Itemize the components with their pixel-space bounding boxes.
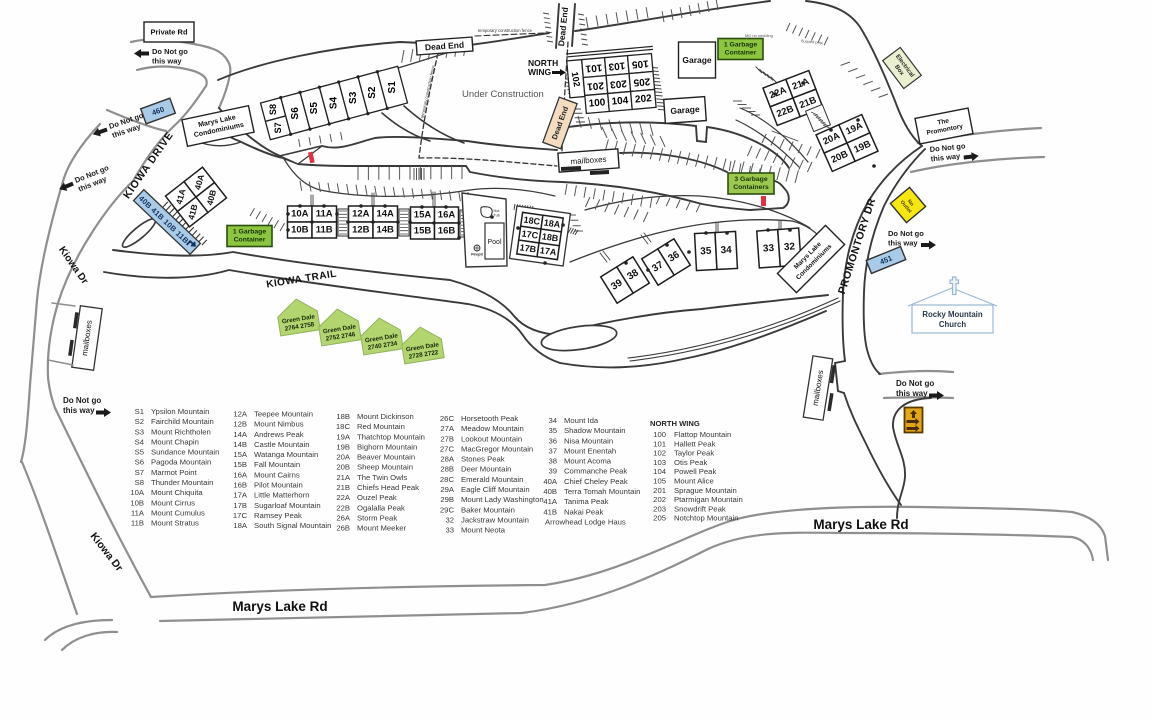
svg-text:Stones Peak: Stones Peak	[461, 455, 505, 464]
svg-text:12B: 12B	[233, 420, 247, 429]
svg-text:202: 202	[653, 495, 666, 504]
svg-text:203: 203	[609, 77, 627, 89]
svg-text:15A: 15A	[414, 210, 432, 221]
svg-text:Fairchild Mountain: Fairchild Mountain	[151, 417, 214, 426]
svg-text:Mount Ida: Mount Ida	[564, 416, 599, 425]
svg-text:20B: 20B	[336, 463, 350, 472]
svg-text:10B: 10B	[291, 225, 309, 236]
svg-text:Taylor Peak: Taylor Peak	[674, 449, 714, 458]
svg-text:36: 36	[548, 436, 557, 445]
svg-text:this way: this way	[152, 57, 182, 66]
svg-text:15B: 15B	[233, 460, 247, 469]
svg-text:28A: 28A	[440, 455, 455, 464]
svg-text:Storm Peak: Storm Peak	[357, 514, 397, 523]
svg-text:Private Rd: Private Rd	[150, 28, 188, 37]
svg-text:Beaver Mountain: Beaver Mountain	[357, 453, 415, 462]
svg-text:Do Not go: Do Not go	[63, 396, 101, 405]
svg-text:29C: 29C	[440, 505, 455, 514]
svg-text:Flattop Mountain: Flattop Mountain	[674, 430, 731, 439]
svg-text:Teepee Mountain: Teepee Mountain	[254, 410, 313, 419]
svg-text:Mount Neota: Mount Neota	[461, 526, 506, 535]
svg-text:S8: S8	[268, 104, 278, 115]
svg-text:Mount Acoma: Mount Acoma	[564, 457, 612, 466]
svg-text:Little Matterhorn: Little Matterhorn	[254, 491, 310, 500]
svg-text:27C: 27C	[440, 444, 455, 453]
svg-text:Hallett Peak: Hallett Peak	[674, 439, 716, 448]
svg-text:Containers: Containers	[733, 184, 769, 191]
svg-text:WING: WING	[528, 67, 552, 77]
svg-text:Chief Cheley Peak: Chief Cheley Peak	[564, 477, 628, 486]
svg-text:Shadow Mountain: Shadow Mountain	[564, 426, 626, 435]
svg-text:10A: 10A	[291, 209, 309, 220]
svg-text:28B: 28B	[440, 465, 454, 474]
svg-text:Pilot Mountain: Pilot Mountain	[254, 481, 303, 490]
svg-text:S5: S5	[309, 102, 320, 115]
svg-text:11B: 11B	[131, 519, 144, 528]
svg-text:17C: 17C	[233, 511, 248, 520]
svg-text:Garage: Garage	[682, 55, 712, 65]
svg-text:The Twin Owls: The Twin Owls	[357, 473, 407, 482]
svg-text:205: 205	[653, 514, 666, 523]
svg-text:100: 100	[653, 430, 666, 439]
svg-text:Otis Peak: Otis Peak	[674, 458, 707, 467]
svg-text:33: 33	[763, 243, 775, 255]
svg-text:this way: this way	[896, 389, 928, 398]
svg-text:14A: 14A	[233, 430, 248, 439]
svg-text:12A: 12A	[233, 410, 248, 419]
svg-text:Emerald Mountain: Emerald Mountain	[461, 475, 523, 484]
svg-text:Tanima Peak: Tanima Peak	[564, 497, 609, 506]
svg-text:S7: S7	[273, 122, 283, 133]
svg-text:34: 34	[548, 416, 557, 425]
svg-text:S6: S6	[135, 458, 144, 467]
svg-text:101: 101	[653, 439, 666, 448]
svg-text:Andrews Peak: Andrews Peak	[254, 430, 304, 439]
svg-text:201: 201	[586, 79, 604, 91]
svg-text:203: 203	[653, 504, 666, 513]
svg-text:Mount Cairns: Mount Cairns	[254, 470, 300, 479]
svg-text:3 Garbage: 3 Garbage	[734, 176, 767, 183]
svg-text:Horsetooth Peak: Horsetooth Peak	[461, 414, 518, 423]
svg-text:MD no sledding: MD no sledding	[745, 33, 773, 38]
svg-text:Pagoda Mountain: Pagoda Mountain	[151, 458, 211, 467]
svg-text:35: 35	[548, 426, 557, 435]
svg-text:15A: 15A	[233, 450, 248, 459]
svg-text:Powell Peak: Powell Peak	[674, 467, 716, 476]
svg-text:22A: 22A	[336, 493, 351, 502]
svg-text:Mount Nimbus: Mount Nimbus	[254, 420, 304, 429]
svg-text:29B: 29B	[440, 495, 454, 504]
svg-text:Marmot Point: Marmot Point	[151, 468, 198, 477]
svg-text:20A: 20A	[336, 453, 351, 462]
svg-text:27B: 27B	[440, 434, 454, 443]
svg-text:Chiefs Head Peak: Chiefs Head Peak	[357, 483, 419, 492]
svg-text:Snowdrift Peak: Snowdrift Peak	[674, 504, 726, 513]
svg-text:37: 37	[548, 446, 557, 455]
svg-text:103: 103	[653, 458, 666, 467]
svg-text:16B: 16B	[438, 226, 456, 237]
svg-text:103: 103	[608, 59, 626, 71]
svg-text:Thatchtop Mountain: Thatchtop Mountain	[357, 432, 425, 441]
svg-text:26B: 26B	[336, 524, 350, 533]
svg-text:Mount Dickinson: Mount Dickinson	[357, 412, 414, 421]
svg-text:10A: 10A	[130, 488, 145, 497]
svg-text:18A: 18A	[233, 521, 248, 530]
svg-text:105: 105	[631, 57, 649, 69]
svg-text:Nisa Mountain: Nisa Mountain	[564, 436, 613, 445]
svg-text:Firepit: Firepit	[471, 253, 483, 257]
svg-text:17A: 17A	[233, 491, 248, 500]
svg-text:temporary construction fence: temporary construction fence	[478, 28, 533, 33]
svg-text:41B: 41B	[543, 507, 557, 516]
svg-text:14A: 14A	[376, 209, 394, 220]
svg-text:this way: this way	[888, 239, 918, 248]
svg-text:32: 32	[445, 516, 454, 525]
svg-text:11A: 11A	[316, 209, 333, 220]
svg-text:Watanga Mountain: Watanga Mountain	[254, 450, 318, 459]
svg-text:S3: S3	[348, 91, 359, 104]
svg-text:Jackstraw Mountain: Jackstraw Mountain	[461, 516, 529, 525]
svg-text:19A: 19A	[336, 432, 351, 441]
svg-text:Under Construction: Under Construction	[462, 89, 544, 100]
svg-text:Mount Chapin: Mount Chapin	[151, 437, 199, 446]
svg-text:Lookout Mountain: Lookout Mountain	[461, 434, 522, 443]
svg-text:Mount Cirrus: Mount Cirrus	[151, 498, 195, 507]
svg-text:S1: S1	[135, 407, 144, 416]
svg-text:1 Garbage: 1 Garbage	[724, 42, 757, 49]
svg-text:Mount Chiquita: Mount Chiquita	[151, 488, 203, 497]
svg-text:Mount Stratus: Mount Stratus	[151, 519, 199, 528]
svg-text:S7: S7	[135, 468, 144, 477]
svg-text:South Signal Mountain: South Signal Mountain	[254, 521, 331, 530]
svg-text:Mount Meeker: Mount Meeker	[357, 524, 407, 533]
svg-text:41A: 41A	[543, 497, 558, 506]
svg-text:Ypsilon Mountain: Ypsilon Mountain	[151, 407, 209, 416]
svg-text:Mount Lady Washington: Mount Lady Washington	[461, 495, 544, 504]
svg-text:21B: 21B	[336, 483, 350, 492]
svg-text:26A: 26A	[336, 514, 351, 523]
svg-text:38: 38	[548, 457, 557, 466]
svg-text:39: 39	[548, 467, 557, 476]
svg-text:33: 33	[445, 526, 454, 535]
svg-text:Ogalalla Peak: Ogalalla Peak	[357, 503, 405, 512]
svg-text:Castle Mountain: Castle Mountain	[254, 440, 310, 449]
svg-text:102: 102	[653, 449, 666, 458]
svg-text:29A: 29A	[440, 485, 455, 494]
svg-text:Do Not go: Do Not go	[888, 229, 924, 238]
svg-text:Fall Mountain: Fall Mountain	[254, 460, 300, 469]
svg-text:40A: 40A	[543, 477, 558, 486]
svg-text:Hot: Hot	[494, 209, 501, 213]
svg-text:12A: 12A	[352, 209, 370, 220]
svg-text:16A: 16A	[438, 210, 456, 221]
svg-text:S2: S2	[367, 86, 378, 99]
svg-text:104: 104	[653, 467, 667, 476]
svg-text:S1: S1	[387, 81, 398, 94]
svg-text:Mount Cumulus: Mount Cumulus	[151, 509, 205, 518]
svg-text:Notchtop Mountain: Notchtop Mountain	[674, 514, 739, 523]
svg-text:32: 32	[784, 241, 796, 253]
svg-text:14B: 14B	[376, 225, 394, 236]
svg-text:21A: 21A	[336, 473, 351, 482]
svg-text:S8: S8	[135, 478, 144, 487]
svg-text:Mount Alice: Mount Alice	[674, 477, 714, 486]
svg-text:Deer Mountain: Deer Mountain	[461, 465, 511, 474]
svg-text:11B: 11B	[316, 225, 333, 236]
svg-text:18B: 18B	[336, 412, 350, 421]
svg-text:Ramsey Peak: Ramsey Peak	[254, 511, 302, 520]
svg-text:18C: 18C	[336, 422, 351, 431]
svg-text:Eagle Cliff Mountain: Eagle Cliff Mountain	[461, 485, 530, 494]
svg-text:11A: 11A	[131, 509, 145, 518]
svg-text:1 Garbage: 1 Garbage	[233, 229, 266, 236]
svg-text:40B: 40B	[543, 487, 557, 496]
svg-text:Thunder Mountain: Thunder Mountain	[151, 478, 213, 487]
svg-text:202: 202	[635, 93, 653, 105]
svg-text:19B: 19B	[336, 442, 350, 451]
svg-text:35: 35	[700, 246, 712, 258]
svg-text:S5: S5	[135, 448, 144, 457]
svg-text:Arrowhead Lodge Haus: Arrowhead Lodge Haus	[545, 518, 626, 527]
svg-text:Container: Container	[234, 236, 266, 243]
svg-text:Sundance Mountain: Sundance Mountain	[151, 448, 219, 457]
svg-text:NORTH WING: NORTH WING	[650, 419, 700, 428]
svg-text:10B: 10B	[130, 498, 144, 507]
svg-text:Tub: Tub	[494, 214, 500, 218]
svg-text:34: 34	[720, 245, 732, 257]
svg-text:Nakai Peak: Nakai Peak	[564, 507, 603, 516]
svg-text:Bighorn Mountain: Bighorn Mountain	[357, 442, 417, 451]
svg-text:S4: S4	[329, 96, 340, 109]
svg-text:101: 101	[585, 61, 603, 73]
svg-text:MacGregor Mountain: MacGregor Mountain	[461, 444, 533, 453]
svg-text:Do Not go: Do Not go	[152, 47, 188, 56]
svg-text:201: 201	[653, 486, 666, 495]
svg-text:27A: 27A	[440, 424, 455, 433]
svg-text:Meadow Mountain: Meadow Mountain	[461, 424, 524, 433]
svg-text:Mount Richtholen: Mount Richtholen	[151, 427, 211, 436]
svg-text:Do Not go: Do Not go	[896, 379, 934, 388]
svg-text:16B: 16B	[233, 481, 247, 490]
svg-text:this way: this way	[63, 406, 95, 415]
svg-text:105: 105	[653, 477, 666, 486]
svg-text:14B: 14B	[233, 440, 247, 449]
svg-text:Terra Tomah Mountain: Terra Tomah Mountain	[564, 487, 640, 496]
svg-text:26C: 26C	[440, 414, 455, 423]
svg-text:Garage: Garage	[670, 104, 700, 116]
svg-text:Sugarloaf Mountain: Sugarloaf Mountain	[254, 501, 321, 510]
svg-text:28C: 28C	[440, 475, 455, 484]
svg-text:17B: 17B	[233, 501, 247, 510]
svg-text:Container: Container	[725, 49, 757, 56]
svg-text:Marys Lake Rd: Marys Lake Rd	[813, 517, 908, 532]
svg-text:104: 104	[611, 95, 629, 107]
svg-text:Sprague Mountain: Sprague Mountain	[674, 486, 737, 495]
svg-text:Commanche Peak: Commanche Peak	[564, 467, 627, 476]
svg-text:S3: S3	[135, 427, 144, 436]
svg-text:S6: S6	[290, 107, 301, 120]
svg-text:Ptarmigan Mountain: Ptarmigan Mountain	[674, 495, 743, 504]
svg-text:12B: 12B	[352, 225, 370, 236]
svg-text:S4: S4	[135, 437, 145, 446]
svg-text:Red Mountain: Red Mountain	[357, 422, 405, 431]
svg-text:15B: 15B	[414, 226, 432, 237]
svg-text:100: 100	[588, 97, 606, 109]
svg-text:Marys Lake Rd: Marys Lake Rd	[232, 599, 327, 614]
svg-text:22B: 22B	[336, 503, 350, 512]
svg-text:Rocky Mountain: Rocky Mountain	[922, 310, 982, 319]
svg-text:Sheep Mountain: Sheep Mountain	[357, 463, 413, 472]
svg-text:Pool: Pool	[487, 239, 501, 246]
svg-text:Church: Church	[939, 320, 967, 329]
svg-text:S2: S2	[135, 417, 144, 426]
svg-text:205: 205	[633, 75, 651, 87]
svg-text:16A: 16A	[233, 470, 248, 479]
svg-text:Baker Mountain: Baker Mountain	[461, 505, 515, 514]
svg-text:Mount Enentah: Mount Enentah	[564, 446, 616, 455]
svg-text:Ouzel Peak: Ouzel Peak	[357, 493, 397, 502]
